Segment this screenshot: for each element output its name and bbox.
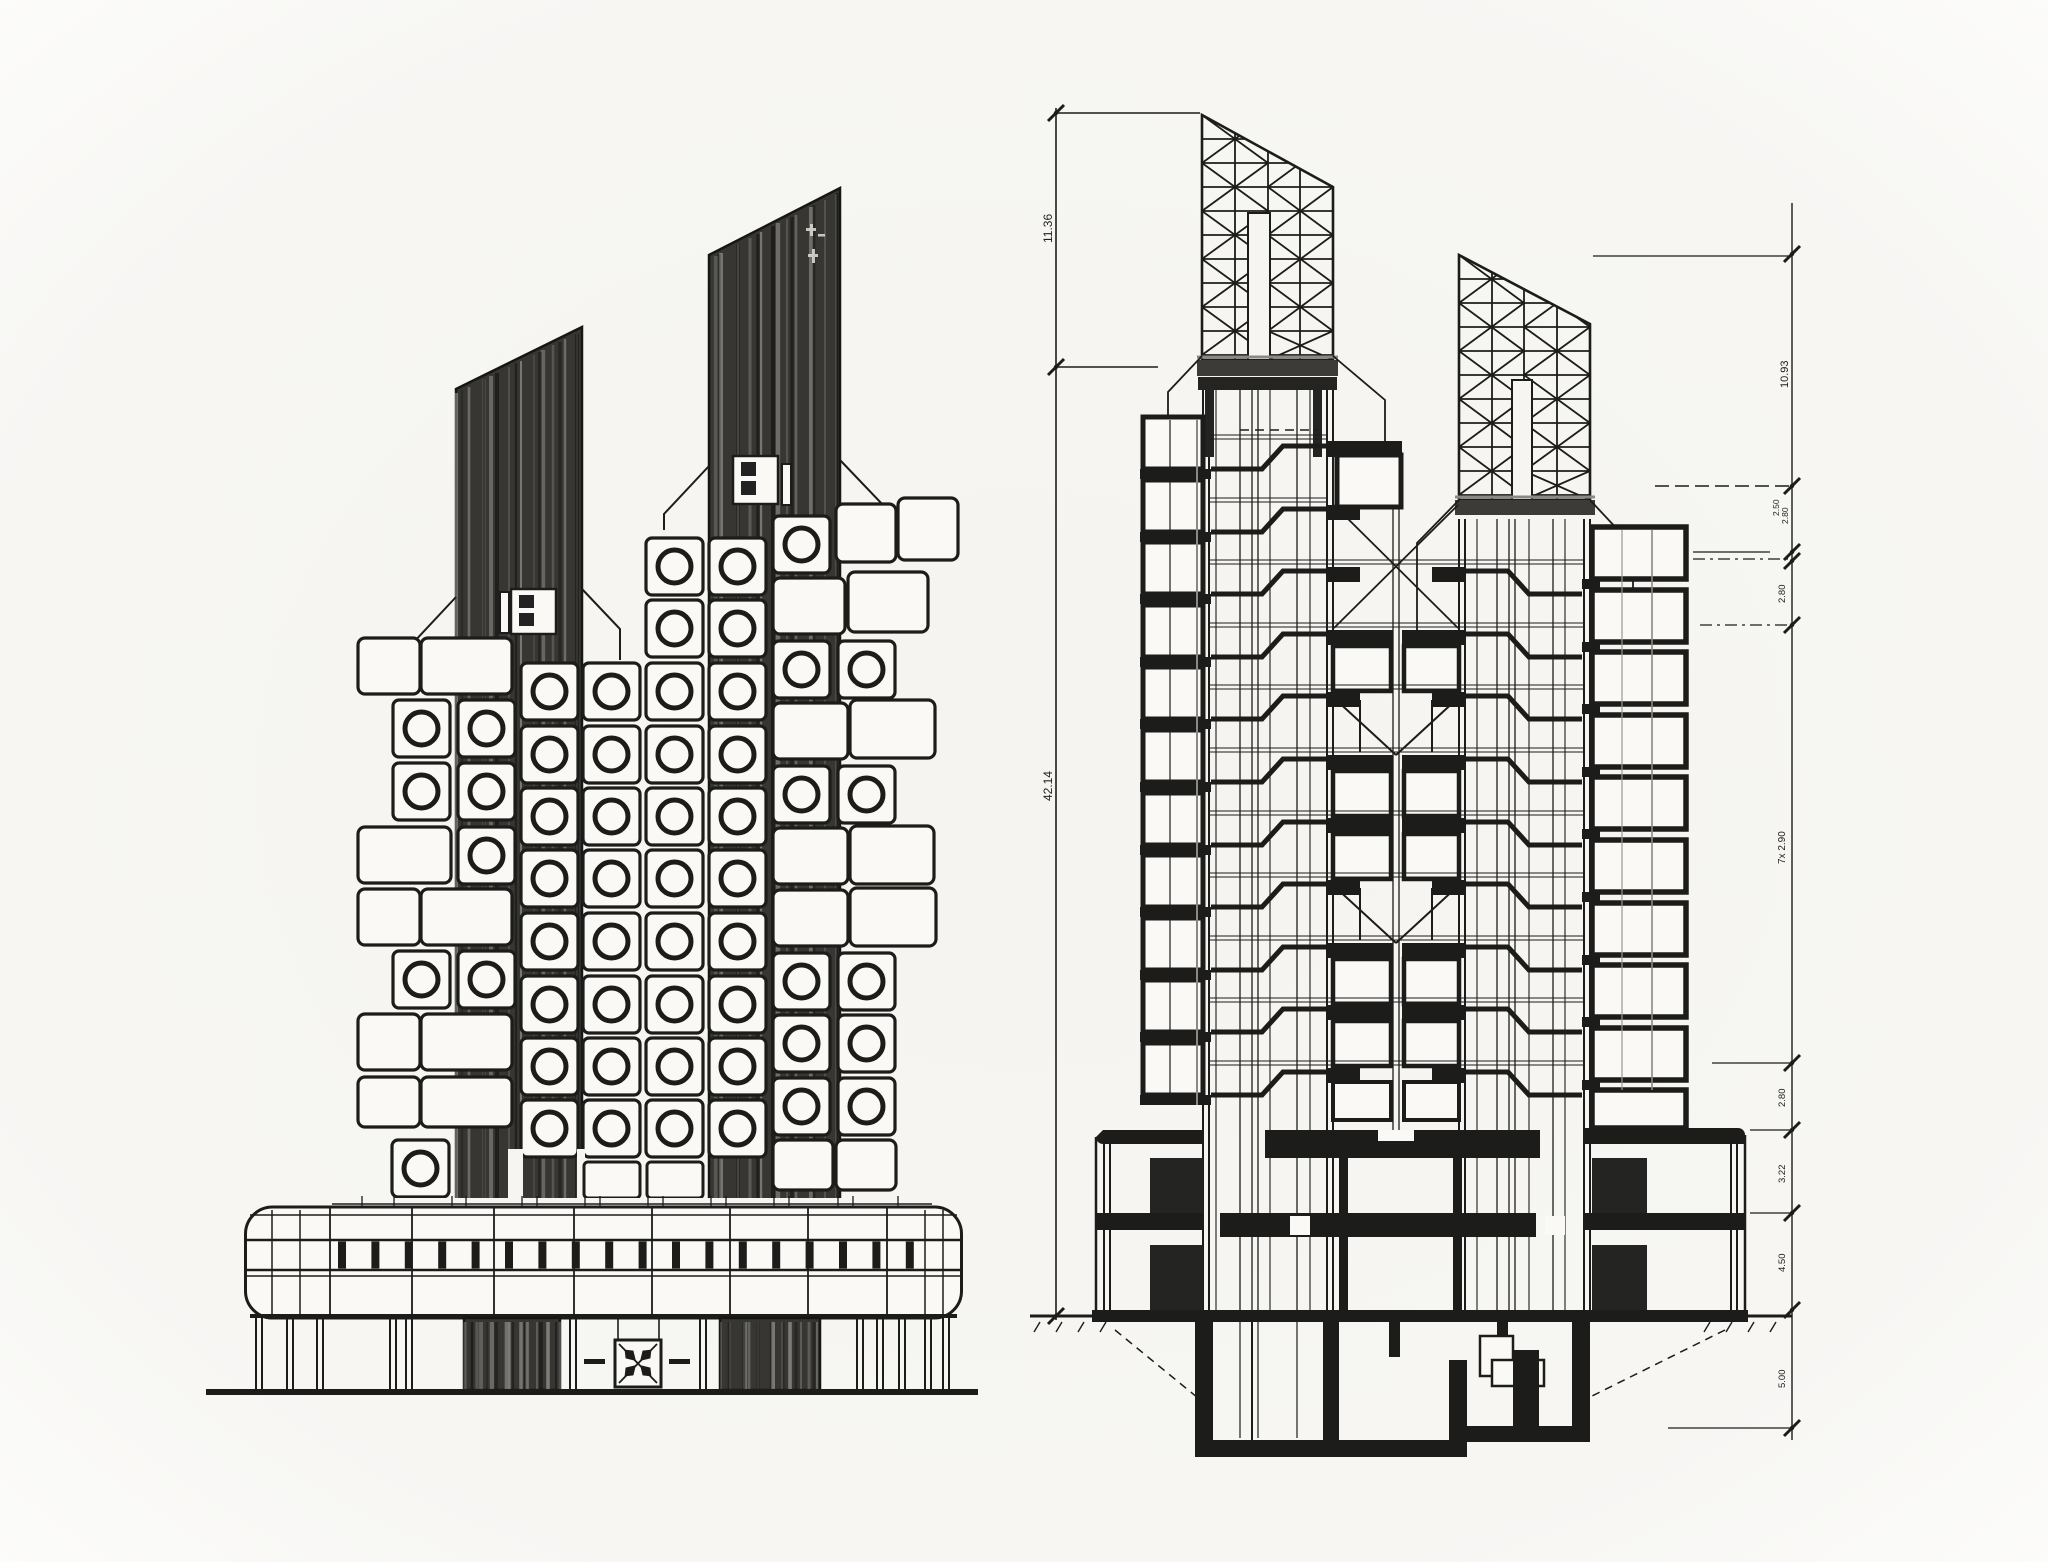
svg-text:3.22: 3.22 — [1777, 1165, 1788, 1184]
svg-text:11.36: 11.36 — [1041, 214, 1055, 243]
svg-text:2.80: 2.80 — [1780, 507, 1790, 524]
svg-text:4.50: 4.50 — [1777, 1254, 1788, 1273]
svg-text:42.14: 42.14 — [1041, 771, 1055, 801]
svg-text:10.93: 10.93 — [1779, 360, 1791, 388]
svg-text:7x 2.90: 7x 2.90 — [1777, 831, 1788, 864]
svg-text:2.80: 2.80 — [1777, 585, 1788, 604]
svg-text:5.00: 5.00 — [1777, 1370, 1788, 1389]
svg-text:2.80: 2.80 — [1777, 1089, 1788, 1108]
